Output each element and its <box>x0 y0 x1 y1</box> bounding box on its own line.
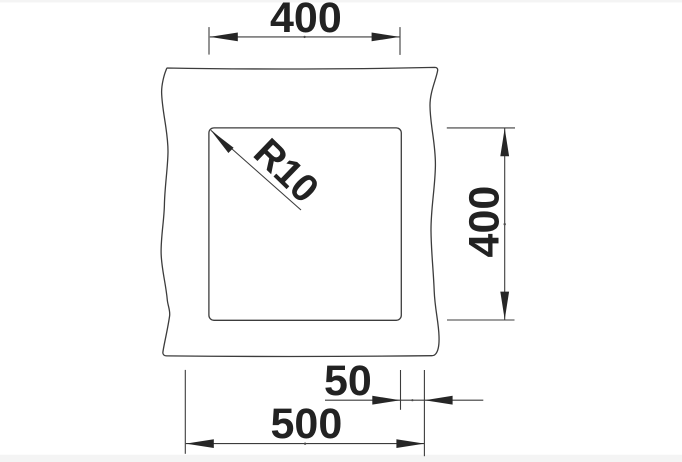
svg-text:400: 400 <box>461 186 509 258</box>
svg-text:400: 400 <box>270 0 342 42</box>
svg-text:500: 500 <box>271 400 343 448</box>
svg-text:50: 50 <box>324 357 372 405</box>
